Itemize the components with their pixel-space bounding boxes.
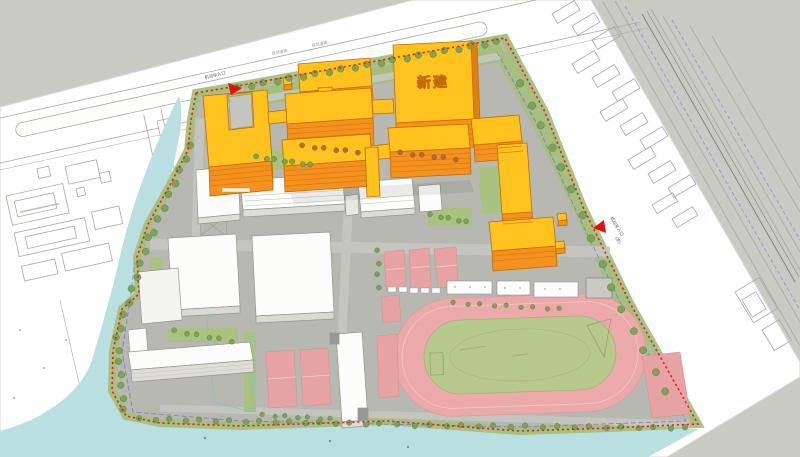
tree [375, 272, 380, 277]
tree [296, 415, 301, 420]
tree [630, 328, 637, 335]
court [377, 334, 399, 398]
tree [165, 191, 172, 198]
tree [326, 69, 333, 76]
tree [333, 421, 339, 427]
tree [142, 248, 149, 255]
tree [145, 234, 152, 241]
tree [116, 347, 123, 354]
tree [260, 412, 265, 417]
tree [283, 413, 288, 418]
building-existing [128, 328, 148, 354]
tree [508, 424, 514, 430]
tree [376, 261, 381, 266]
tree [312, 70, 319, 77]
tree [226, 417, 232, 423]
tree [540, 424, 546, 430]
tree [490, 423, 496, 429]
tree [607, 284, 615, 292]
tree [451, 300, 456, 305]
tree [504, 303, 509, 308]
tree [492, 304, 497, 309]
shrub [321, 145, 326, 150]
new-building-u-block [203, 90, 273, 196]
tree [271, 156, 276, 161]
shrub [300, 143, 305, 148]
tree [216, 336, 221, 341]
tree [128, 285, 135, 292]
running-track [392, 292, 648, 419]
tree [318, 417, 323, 422]
tree [618, 306, 625, 313]
tree [282, 159, 287, 164]
tree [305, 415, 310, 420]
tree [557, 164, 565, 172]
tree [286, 419, 292, 425]
building-existing [138, 268, 182, 324]
tree [172, 180, 179, 187]
tree [477, 302, 482, 307]
shrub [410, 152, 415, 157]
tree [120, 395, 127, 402]
tree [273, 414, 278, 419]
tree [194, 332, 199, 337]
tree [307, 162, 312, 167]
tree [337, 66, 344, 73]
tree [466, 302, 471, 307]
tree [300, 162, 305, 167]
tree [115, 358, 122, 365]
shrub [441, 155, 446, 160]
tree [522, 423, 528, 429]
tree [207, 335, 212, 340]
tree [161, 205, 168, 212]
tree [166, 416, 172, 422]
tree [567, 186, 575, 194]
tree [650, 424, 656, 430]
tree [599, 260, 607, 268]
new-building-label: 新建 [417, 73, 450, 90]
tree [554, 423, 560, 429]
tree [118, 371, 125, 378]
tree [229, 339, 234, 344]
tree [519, 305, 524, 310]
tree [528, 102, 536, 110]
shrub [432, 155, 437, 160]
tree [213, 419, 219, 425]
tree [545, 307, 550, 312]
tree [328, 416, 333, 421]
tree [587, 235, 595, 243]
tree [516, 80, 524, 88]
court [409, 248, 431, 289]
tree [430, 51, 437, 58]
tree [264, 156, 269, 161]
tree [375, 248, 380, 253]
tree [154, 216, 161, 223]
tree [530, 305, 535, 310]
tree [428, 212, 433, 217]
tree [376, 285, 381, 290]
shrub [419, 152, 424, 157]
tree [464, 219, 469, 224]
tree [150, 229, 157, 236]
shrub [453, 157, 458, 162]
tree [446, 215, 451, 220]
tree [412, 423, 418, 429]
shrub [343, 148, 348, 153]
tree [537, 122, 545, 130]
site-plan-image: 新建 机动 [0, 0, 800, 457]
tree [256, 418, 262, 424]
tree [253, 154, 258, 159]
court [381, 295, 401, 323]
tree [196, 417, 202, 423]
tree [456, 46, 463, 53]
tree [172, 328, 177, 333]
tree [618, 424, 624, 430]
tree [118, 382, 125, 389]
tree [289, 159, 294, 164]
shrub [355, 150, 360, 155]
tree [441, 47, 448, 54]
tree [352, 65, 359, 72]
tree [438, 215, 443, 220]
tree [640, 347, 647, 354]
tree [185, 331, 190, 336]
shrub [334, 148, 339, 153]
tree [668, 426, 674, 432]
shrub [312, 145, 317, 150]
tree [243, 419, 249, 425]
tree [652, 369, 659, 376]
tree [662, 388, 669, 395]
building-existing [252, 232, 334, 316]
tree [549, 144, 557, 152]
tree [557, 306, 562, 311]
shrub [398, 150, 403, 155]
tree [183, 418, 189, 424]
tree [456, 218, 461, 223]
